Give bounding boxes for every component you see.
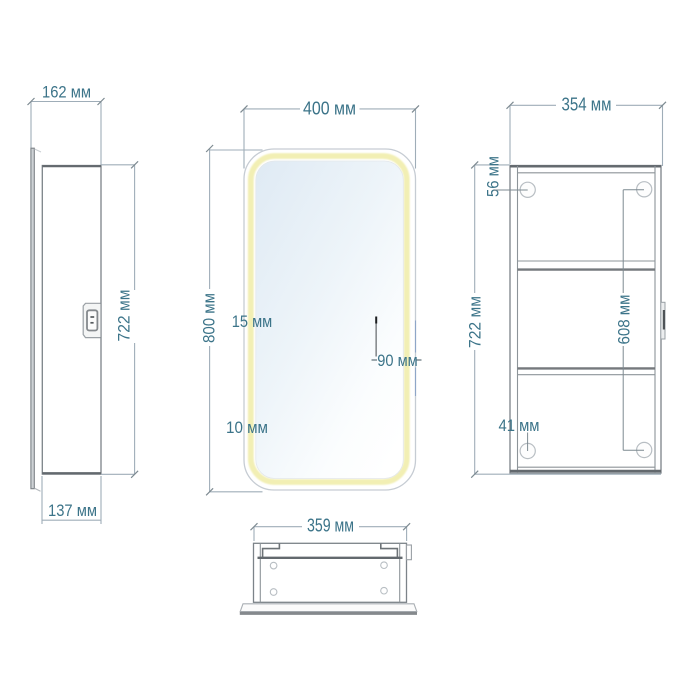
- svg-text:359 мм: 359 мм: [307, 516, 354, 536]
- svg-text:162 мм: 162 мм: [42, 83, 91, 102]
- svg-text:56 мм: 56 мм: [483, 156, 502, 197]
- svg-text:10 мм: 10 мм: [226, 418, 268, 437]
- svg-text:15 мм: 15 мм: [232, 312, 273, 331]
- svg-text:90 мм: 90 мм: [377, 351, 418, 370]
- svg-text:400 мм: 400 мм: [303, 97, 356, 118]
- svg-text:800 мм: 800 мм: [200, 293, 219, 343]
- svg-text:608 мм: 608 мм: [615, 295, 634, 345]
- svg-text:722 мм: 722 мм: [115, 290, 134, 342]
- svg-text:354 мм: 354 мм: [562, 93, 612, 114]
- svg-text:137 мм: 137 мм: [48, 501, 97, 520]
- svg-text:722 мм: 722 мм: [466, 296, 485, 348]
- svg-text:41 мм: 41 мм: [499, 416, 540, 435]
